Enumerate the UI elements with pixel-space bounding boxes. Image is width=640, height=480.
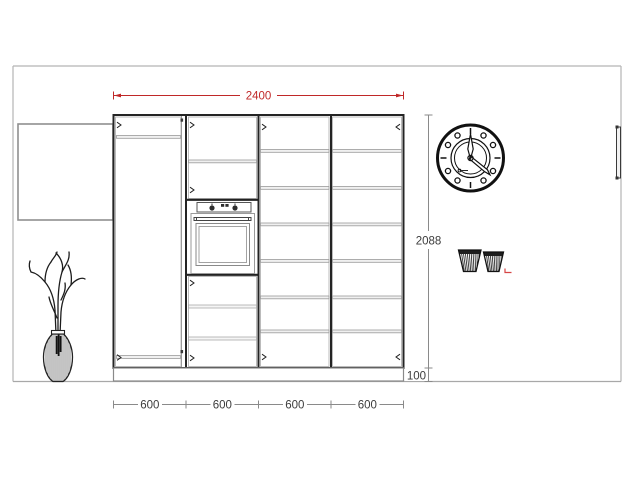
- dimension-sections: 600 600 600 600: [114, 400, 404, 412]
- clock-center-dot: [470, 157, 472, 159]
- dimension-total-width: 2400: [114, 91, 404, 103]
- dim-label-plinth-height: 100: [407, 371, 426, 383]
- basket-right[interactable]: [484, 252, 504, 272]
- drawer-line: [189, 305, 257, 308]
- oven-handle: [194, 218, 251, 221]
- oven-display: [221, 204, 224, 207]
- oven-knob-right[interactable]: [232, 205, 237, 210]
- oven-display: [225, 204, 228, 207]
- dim-label-section-2: 600: [213, 400, 232, 412]
- dim-label-section-1: 600: [140, 400, 159, 412]
- door-handle[interactable]: [616, 126, 621, 180]
- drawer-line: [189, 337, 257, 340]
- top-rail: [117, 136, 181, 139]
- dim-label-cabinet-height: 2088: [416, 236, 442, 248]
- elevation-drawing-canvas: 2400 2088 100 600 600 6: [0, 0, 640, 480]
- oven-knob-left[interactable]: [209, 205, 214, 210]
- oven-control-panel: [197, 203, 251, 213]
- dim-label-section-3: 600: [285, 400, 304, 412]
- branches: [29, 252, 85, 334]
- cabinet-plinth: [114, 368, 404, 381]
- wall-clock[interactable]: [438, 125, 504, 191]
- hinge-mark-bottom: [181, 350, 184, 353]
- basket-left[interactable]: [459, 250, 482, 272]
- dim-arrow-left: [114, 94, 121, 98]
- hinge-mark-top: [181, 119, 184, 122]
- shelf: [189, 160, 257, 163]
- bottom-rail: [117, 356, 181, 359]
- baskets[interactable]: [459, 250, 512, 273]
- built-in-oven[interactable]: [191, 203, 255, 274]
- left-side-panel[interactable]: [18, 124, 113, 220]
- oven-window-inner: [199, 227, 247, 263]
- selection-mark: [505, 269, 512, 273]
- handle-cap-bottom: [616, 177, 619, 180]
- tall-cabinet-run[interactable]: [114, 115, 404, 381]
- dimension-height: 2088 100: [405, 115, 441, 383]
- handle-cap-top: [616, 126, 619, 129]
- dim-label-section-4: 600: [358, 400, 377, 412]
- vase-with-branches[interactable]: [29, 252, 85, 382]
- vase-rim: [52, 331, 65, 335]
- dim-arrow-right: [396, 94, 403, 98]
- dim-label-total-width: 2400: [246, 91, 272, 103]
- clock-detail: [458, 169, 461, 172]
